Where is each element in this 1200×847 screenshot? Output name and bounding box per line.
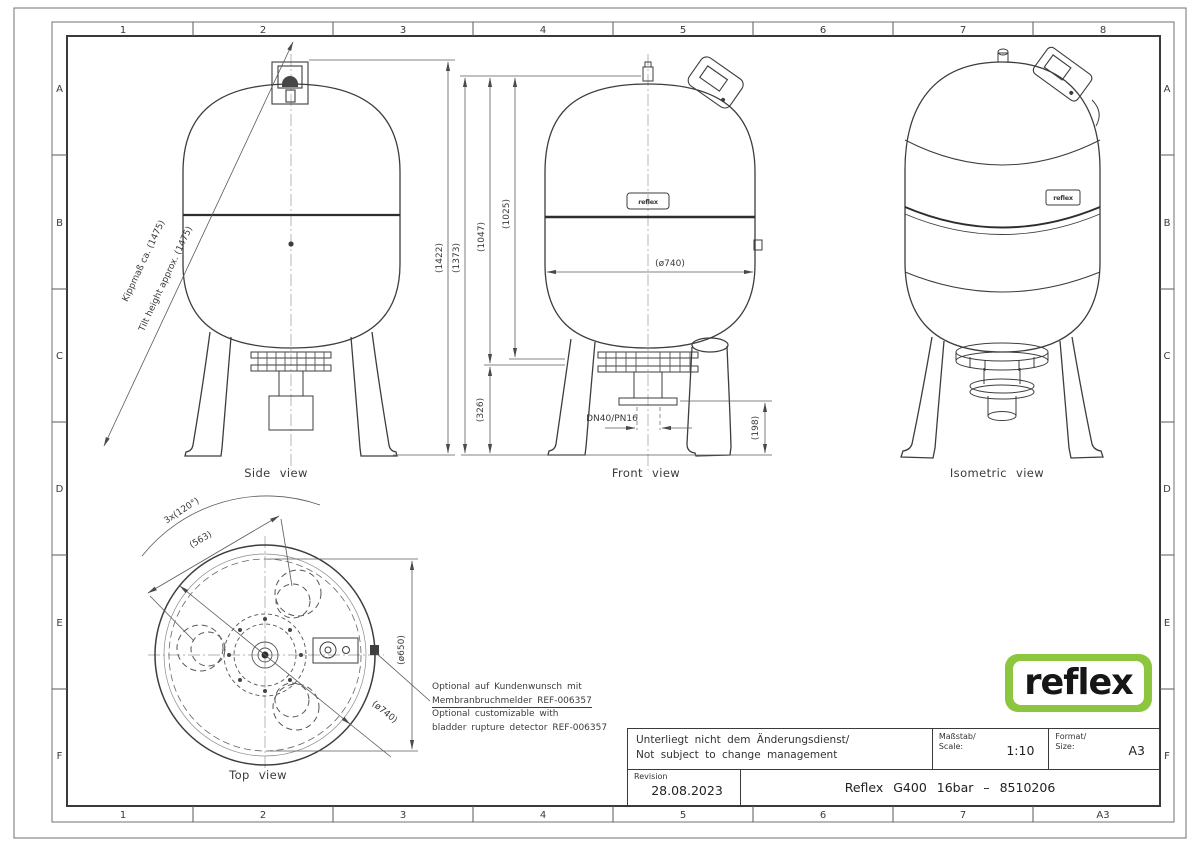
grid-col-label: 3 [400, 810, 406, 821]
dim-label-1047: (1047) [477, 222, 487, 252]
reflex-logo: reflex [1005, 654, 1152, 712]
leg [901, 337, 944, 458]
bottom-connection [956, 343, 1048, 421]
dim-label-1422: (1422) [435, 243, 445, 273]
dim-label-198: (198) [751, 416, 761, 440]
dimension-1422 [309, 60, 455, 455]
grid-col-label: 3 [400, 25, 406, 36]
grid-col-label: 6 [820, 25, 826, 36]
note-line-de-2: Membranbruchmelder REF-006357 [432, 695, 592, 708]
nameplate-text: reflex [1053, 194, 1074, 202]
top-view: 3x(120°) (563) (ø650) (ø740) Top view [142, 496, 430, 782]
dim-label-740-top: (ø740) [370, 699, 399, 725]
grid-row-label: C [1164, 351, 1171, 362]
reflex-logo-inner: reflex [1013, 661, 1144, 705]
grid-col-label: 4 [540, 25, 546, 36]
dim-label-650: (ø650) [397, 635, 407, 665]
grid-row-label: F [1164, 751, 1170, 762]
height-dimensions [460, 76, 772, 455]
format-cell: Format/ Size: A3 [1049, 729, 1159, 769]
change-note-de: Unterliegt nicht dem Änderungsdienst/ [636, 733, 932, 748]
grid-row-label: D [1163, 484, 1171, 495]
grid-row-label: B [1164, 218, 1171, 229]
grid-col-label: 7 [960, 810, 966, 821]
nameplate-text: reflex [638, 198, 659, 206]
top-valve [998, 49, 1008, 62]
nameplate: reflex [1046, 190, 1080, 205]
revision-date: 28.08.2023 [634, 783, 740, 798]
leg-top [692, 338, 728, 352]
dim-label-1373: (1373) [452, 243, 462, 273]
connection-label: DN40/PN16 [586, 414, 638, 424]
change-note-en: Not subject to change management [636, 748, 932, 763]
grid-col-label: 5 [680, 810, 686, 821]
grid-row-label: E [56, 618, 62, 629]
grid-row-label: C [56, 351, 63, 362]
reflex-logo-text: reflex [1024, 663, 1133, 704]
leg [185, 332, 231, 456]
tilt-label-en: Tilt height approx. (1475) [137, 225, 195, 334]
front-view: reflex (ø740) [452, 54, 772, 480]
grid-row-label: B [56, 218, 63, 229]
grid-row-label: A [56, 84, 63, 95]
dim-label-1025: (1025) [502, 199, 512, 229]
format-label-de: Format/ [1055, 732, 1159, 742]
scale-label-de: Maßstab/ [939, 732, 1049, 742]
grid-col-label: 6 [820, 810, 826, 821]
front-view-caption: Front view [612, 466, 680, 480]
revision-cell: Revision 28.08.2023 [628, 770, 741, 806]
shoulder-fitting [685, 54, 745, 111]
grid-row-label: A [1164, 84, 1171, 95]
leg [1060, 337, 1103, 458]
leg-circles [177, 570, 321, 730]
grid-col-label: 4 [540, 810, 546, 821]
optional-note: Optional auf Kundenwunsch mit Membranbru… [432, 681, 622, 735]
scale-cell: Maßstab/ Scale: 1:10 [933, 729, 1050, 769]
isometric-view-caption: Isometric view [950, 466, 1044, 480]
vessel-outline [905, 62, 1100, 352]
leg [351, 332, 397, 456]
grid-row-label: F [57, 751, 63, 762]
change-management-cell: Unterliegt nicht dem Änderungsdienst/ No… [628, 729, 933, 769]
note-line-de-1: Optional auf Kundenwunsch mit [432, 681, 622, 695]
scale-value: 1:10 [1006, 743, 1034, 758]
title-block: Unterliegt nicht dem Änderungsdienst/ No… [627, 728, 1160, 806]
isometric-view: reflex Isometric view [901, 45, 1103, 480]
grid-col-label: 2 [260, 25, 266, 36]
grid-col-label: 1 [120, 25, 126, 36]
shoulder-fitting [1031, 45, 1093, 103]
top-view-caption: Top view [228, 768, 287, 782]
leg [548, 339, 595, 455]
grid-row-label: D [56, 484, 64, 495]
side-view-caption: Side view [244, 466, 308, 480]
tilt-dimension-line [104, 42, 293, 446]
detector-plate [313, 638, 379, 663]
grid-col-label: 5 [680, 25, 686, 36]
format-value: A3 [1128, 743, 1145, 758]
drawing-title: Reflex G400 16bar – 8510206 [741, 770, 1159, 806]
grid-row-label: E [1164, 618, 1170, 629]
dim-label-563: (563) [188, 530, 214, 551]
dim-label-legs-angle: 3x(120°) [163, 496, 202, 526]
grid-col-label: 8 [1100, 25, 1106, 36]
side-view: (1422) Kippmaß ca. (1475) Tilt height ap… [104, 42, 455, 480]
note-line-en-1: Optional customizable with [432, 708, 622, 722]
dim-label-740: (ø740) [655, 259, 685, 269]
top-valve [272, 62, 308, 104]
dim-label-326: (326) [476, 398, 486, 422]
note-line-en-2: bladder rupture detector REF-006357 [432, 722, 622, 736]
revision-label: Revision [634, 772, 740, 781]
drawing-sheet: 1 2 3 4 5 6 7 8 1 2 3 4 5 6 7 A3 A B C D… [0, 0, 1200, 847]
grid-col-label: 7 [960, 25, 966, 36]
grid-col-label: 2 [260, 810, 266, 821]
leg-angle-arc [142, 496, 320, 556]
grid-col-label: A3 [1096, 810, 1109, 821]
grid-col-label: 1 [120, 810, 126, 821]
